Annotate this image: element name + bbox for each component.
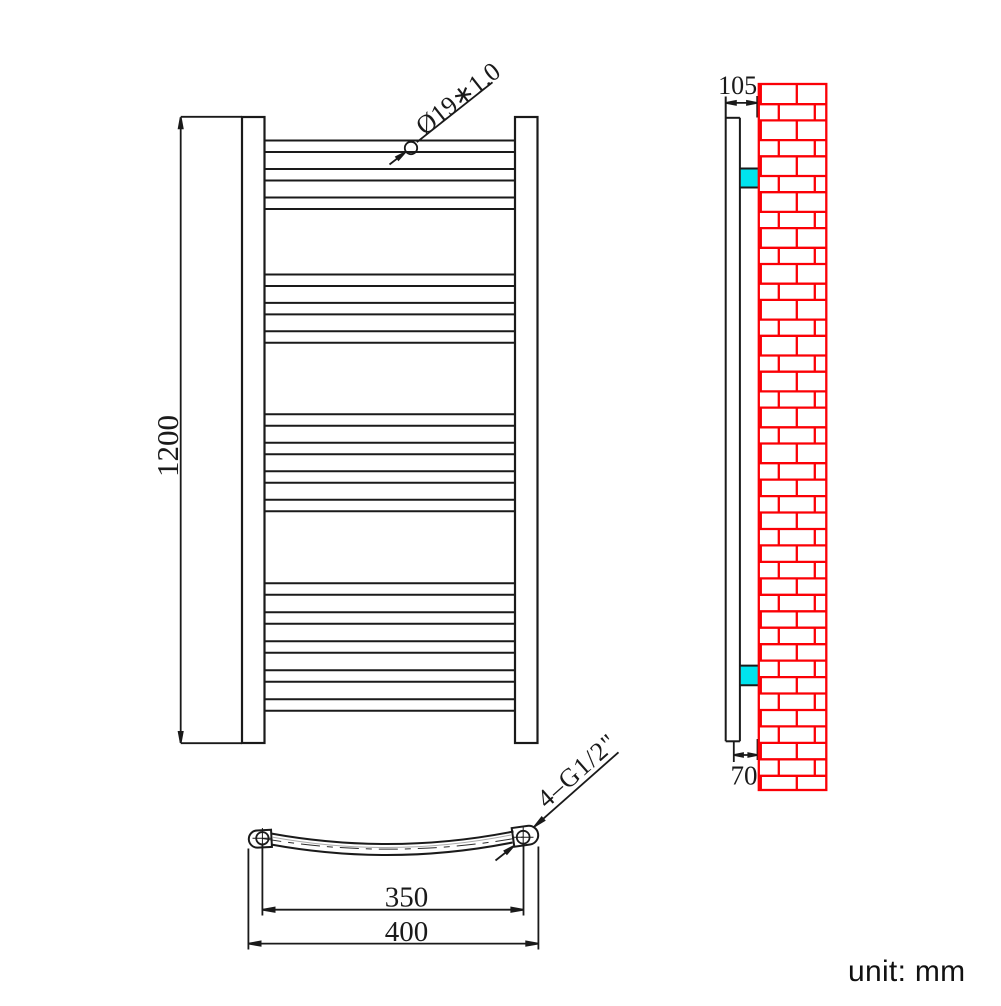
svg-text:350: 350: [385, 882, 429, 914]
svg-text:Ø19∗1.0: Ø19∗1.0: [410, 57, 506, 141]
svg-text:1200: 1200: [150, 415, 185, 477]
svg-text:unit: mm: unit: mm: [848, 955, 965, 988]
svg-text:70: 70: [731, 761, 758, 791]
svg-text:400: 400: [385, 916, 429, 948]
svg-text:4–G1/2": 4–G1/2": [531, 728, 623, 814]
svg-text:105: 105: [718, 71, 757, 100]
